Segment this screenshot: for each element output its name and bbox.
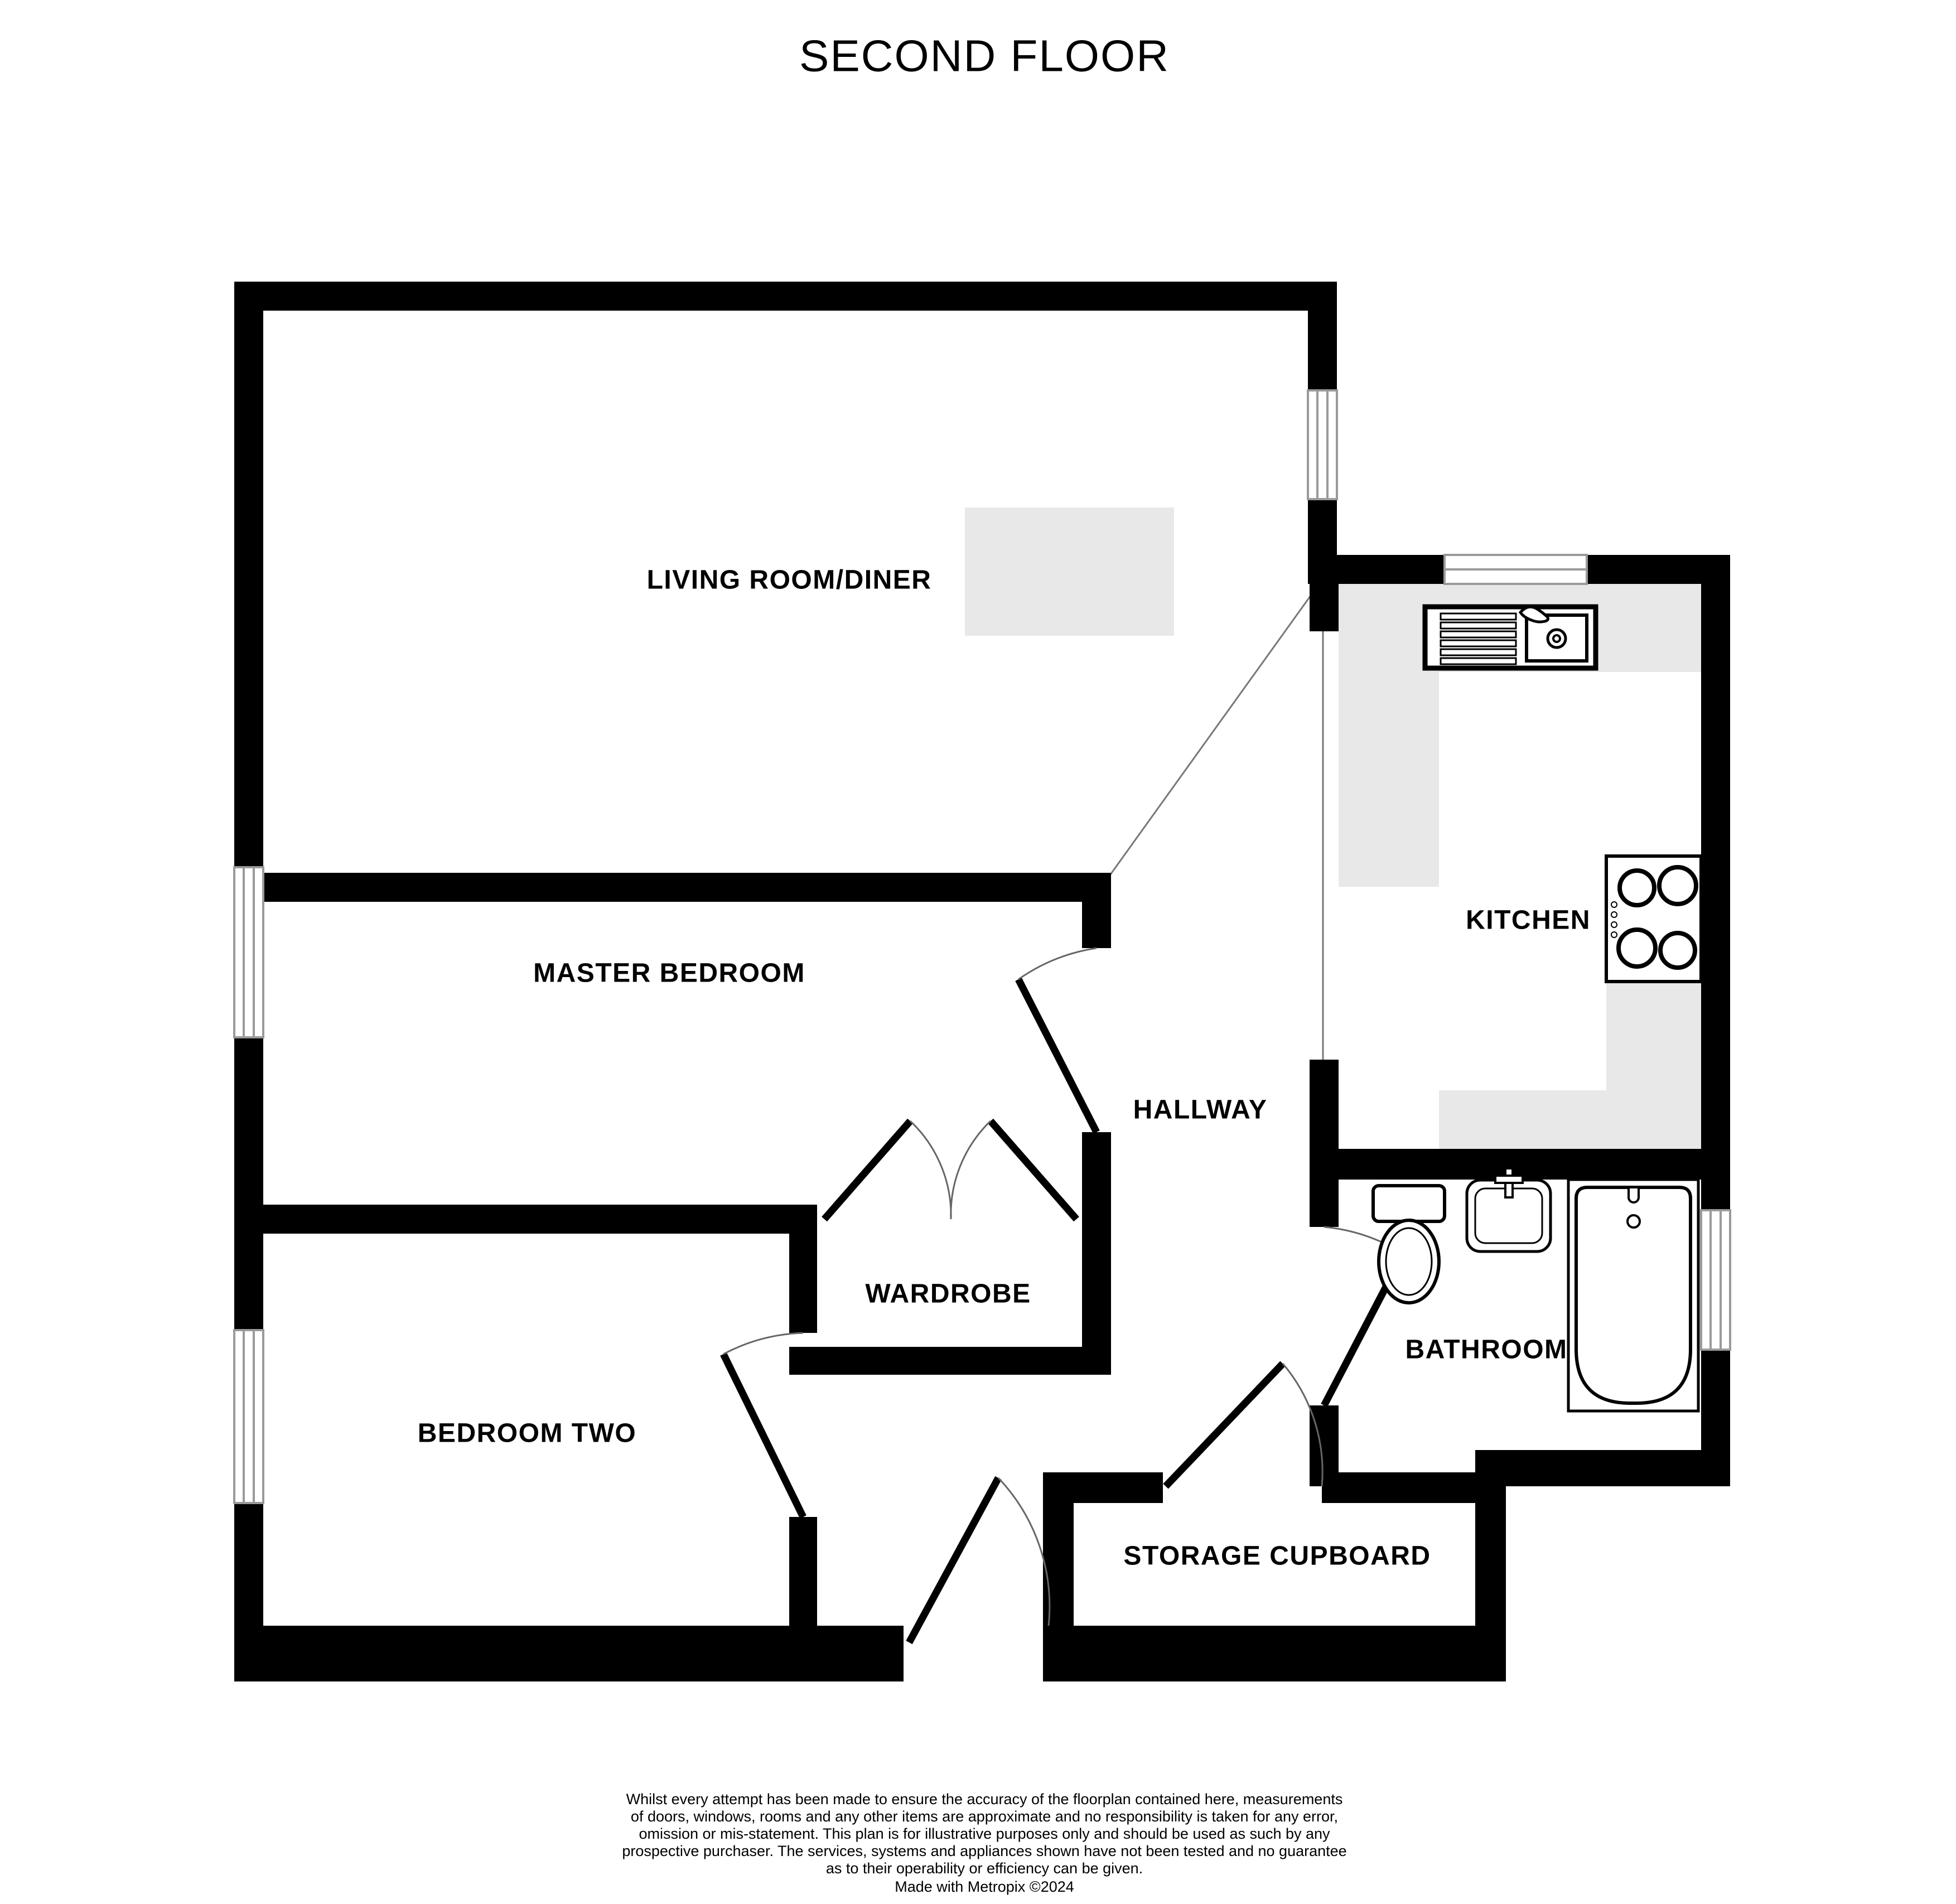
label-storage: STORAGE CUPBOARD — [1123, 1541, 1431, 1571]
label-living-room: LIVING ROOM/DINER — [647, 566, 932, 595]
disclaimer-line: prospective purchaser. The services, sys… — [622, 1843, 1346, 1859]
door-storage — [1166, 1364, 1322, 1486]
disclaimer-line: omission or mis-statement. This plan is … — [639, 1825, 1330, 1842]
toilet-icon — [1373, 1186, 1445, 1303]
window-bedroom2 — [234, 1330, 263, 1503]
wall-kitchen-left-stub — [1310, 584, 1339, 631]
disclaimer-line: Whilst every attempt has been made to en… — [626, 1791, 1343, 1808]
kitchen-sink-icon — [1425, 607, 1596, 668]
walls — [234, 282, 1730, 1681]
disclaimer-line: as to their operability or efficiency ca… — [826, 1860, 1143, 1877]
wall-top — [234, 282, 1337, 311]
label-master-bedroom: MASTER BEDROOM — [533, 959, 805, 988]
metropix-credit: Made with Metropix ©2024 — [895, 1878, 1074, 1895]
wall-living-bottom — [234, 873, 1111, 902]
disclaimer: Whilst every attempt has been made to en… — [622, 1791, 1346, 1895]
door-entrance — [909, 1478, 1050, 1642]
disclaimer-line: of doors, windows, rooms and any other i… — [631, 1808, 1338, 1825]
sofa-block — [965, 508, 1174, 636]
wall-bed2-right-lower — [789, 1517, 817, 1628]
window-kitchen — [1445, 555, 1587, 584]
label-bathroom: BATHROOM — [1405, 1335, 1567, 1365]
wall-hall-left-b — [1082, 1132, 1111, 1375]
wall-bathroom-bottom — [1475, 1450, 1730, 1486]
label-wardrobe: WARDROBE — [865, 1279, 1031, 1309]
door-master — [1018, 948, 1097, 1132]
window-master — [234, 867, 263, 1037]
wall-kitchen-top-left — [1308, 555, 1445, 584]
wall-right-upper — [1701, 555, 1730, 1210]
floorplan-canvas: SECOND FLOOR — [0, 0, 1956, 1904]
window-bathroom — [1701, 1210, 1730, 1350]
wall-bathroom-left-upper — [1310, 1060, 1339, 1227]
label-bedroom-two: BEDROOM TWO — [418, 1419, 636, 1448]
label-hallway: HALLWAY — [1133, 1095, 1268, 1125]
basin-icon — [1467, 1168, 1551, 1251]
window-living — [1308, 390, 1337, 499]
wall-living-right-upper — [1308, 282, 1337, 390]
wall-hall-left-a — [1082, 873, 1111, 948]
wall-wardrobe-bottom — [789, 1347, 1111, 1375]
page-title: SECOND FLOOR — [799, 31, 1170, 81]
wall-master-bed2-divider — [263, 1205, 817, 1234]
label-kitchen: KITCHEN — [1466, 906, 1591, 935]
floorplan-page: SECOND FLOOR — [0, 0, 1956, 1904]
wall-bed2-right-upper — [789, 1205, 817, 1333]
door-wardrobe-double — [824, 1121, 1076, 1219]
wall-bottom-left — [234, 1626, 904, 1681]
bath-icon — [1568, 1180, 1698, 1411]
wall-storage-top-left — [1043, 1472, 1163, 1503]
wall-storage-bottom — [1043, 1626, 1506, 1681]
hob-icon — [1606, 856, 1701, 982]
